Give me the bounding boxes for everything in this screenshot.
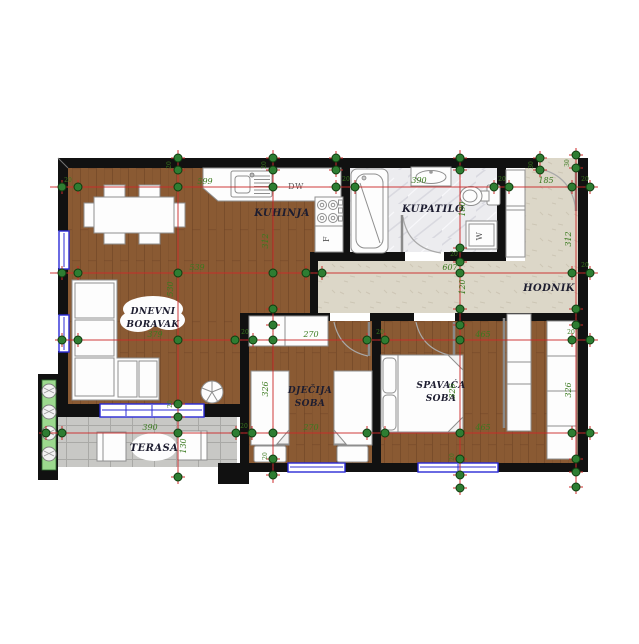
living-window-1 (59, 231, 69, 269)
dimension-label: 20 (167, 400, 174, 408)
dining-chair (104, 232, 125, 244)
bed-pillow (383, 395, 396, 430)
dimension-label: 30 (564, 159, 571, 167)
dimension-label: 326 (448, 383, 457, 398)
dimension-label: 390 (411, 176, 426, 185)
sink-faucet-icon (250, 173, 254, 177)
dimension-label: 130 (179, 438, 188, 453)
bed-pillow (383, 358, 396, 393)
kitchen-label: KUHINJA (253, 208, 310, 219)
bedroom-window (418, 463, 498, 472)
dimension-label: 20 (449, 453, 456, 461)
dimension-label: 120 (458, 279, 467, 294)
floor-plan-drawing: DNEVNI BORAVAK KUHINJA KUPATILO HODNIK D… (0, 0, 639, 644)
dimension-label: 20 (261, 161, 268, 169)
children-room-window (288, 463, 345, 472)
dimension-label: 465 (474, 423, 490, 432)
dimension-label: 30 (528, 161, 535, 169)
left-wall-a (58, 158, 68, 231)
bottom-wall (230, 463, 588, 472)
dimension-label: 312 (564, 231, 573, 246)
dining-table (94, 197, 174, 233)
top-wall-left (58, 158, 538, 168)
plant-icon (42, 384, 56, 398)
bathroom-faucet-icon (429, 170, 433, 174)
dimension-label: 20 (450, 251, 458, 258)
dimension-label: 20 (567, 329, 575, 336)
dimension-label: 312 (261, 233, 270, 248)
living-room-label: DNEVNI BORAVAK (120, 296, 185, 332)
dimension-label: 20 (166, 161, 173, 169)
dining-chair (173, 203, 185, 227)
dimension-marker (453, 481, 467, 495)
dimension-label: 530 (166, 281, 175, 296)
dimension-label: 20 (241, 329, 249, 336)
bathtub-drain-icon (362, 176, 366, 180)
plant-icon (42, 447, 56, 461)
terrace-chair (97, 432, 126, 461)
living-hall-wall (310, 252, 318, 313)
terrace-planter (42, 380, 56, 470)
dimension-label: 20 (342, 176, 350, 183)
sink-basin (235, 176, 250, 193)
living-children-wall (240, 313, 249, 484)
dimension-label: 20 (498, 176, 506, 183)
bedroom-label-line1: SPAVAĆA (416, 379, 465, 391)
dimension-label: 326 (564, 382, 573, 397)
dimension-label: 20 (581, 176, 589, 183)
bedroom-wardrobe-mid (507, 314, 531, 431)
children-bedroom-wall (372, 313, 381, 472)
terrace-sliding-window (100, 404, 204, 417)
terrace-corner-block (218, 463, 246, 484)
children-bed-2-pillow (337, 446, 368, 462)
dining-chair (139, 232, 160, 244)
terrace-label-text: TERASA (130, 443, 179, 454)
dimension-label: 20 (240, 423, 248, 430)
dimension-label: 185 (538, 176, 553, 185)
dimension-label: 326 (261, 381, 270, 396)
fridge-label: F (322, 236, 331, 242)
dimension-label: 465 (474, 330, 490, 339)
terrace-window-wall-left (58, 404, 101, 417)
dimension-label: 539 (189, 263, 204, 272)
dimension-label: 270 (302, 330, 318, 339)
living-window-2 (59, 315, 69, 352)
dimension-label: 599 (197, 177, 212, 186)
dimension-label: 607 (442, 263, 458, 272)
dimension-label: 379 (147, 330, 162, 339)
floor-plan-canvas: DNEVNI BORAVAK KUHINJA KUPATILO HODNIK D… (0, 0, 639, 644)
dimension-label: 270 (302, 423, 318, 432)
living-room-label-line2: BORAVAK (125, 320, 180, 330)
washing-machine-label: W (475, 231, 484, 240)
plant-icon (42, 405, 56, 419)
dimension-label: 20 (581, 262, 589, 269)
dimension-label: 20 (376, 329, 384, 336)
dimension-label: 20 (262, 452, 269, 460)
dimension-label: 180 (458, 201, 467, 216)
dimension-label: 390 (142, 423, 157, 432)
side-table (201, 381, 223, 403)
dimension-marker (569, 480, 583, 494)
children-room-label-line1: DJEČIJA (287, 384, 332, 396)
bathroom-label: KUPATILO (401, 204, 464, 215)
hallway-label: HODNIK (522, 283, 576, 294)
living-room-label-line1: DNEVNI (130, 307, 176, 317)
dimension-marker (171, 470, 185, 484)
children-room-label-line2: SOBA (295, 399, 326, 409)
dimension-label: 20 (64, 177, 72, 184)
